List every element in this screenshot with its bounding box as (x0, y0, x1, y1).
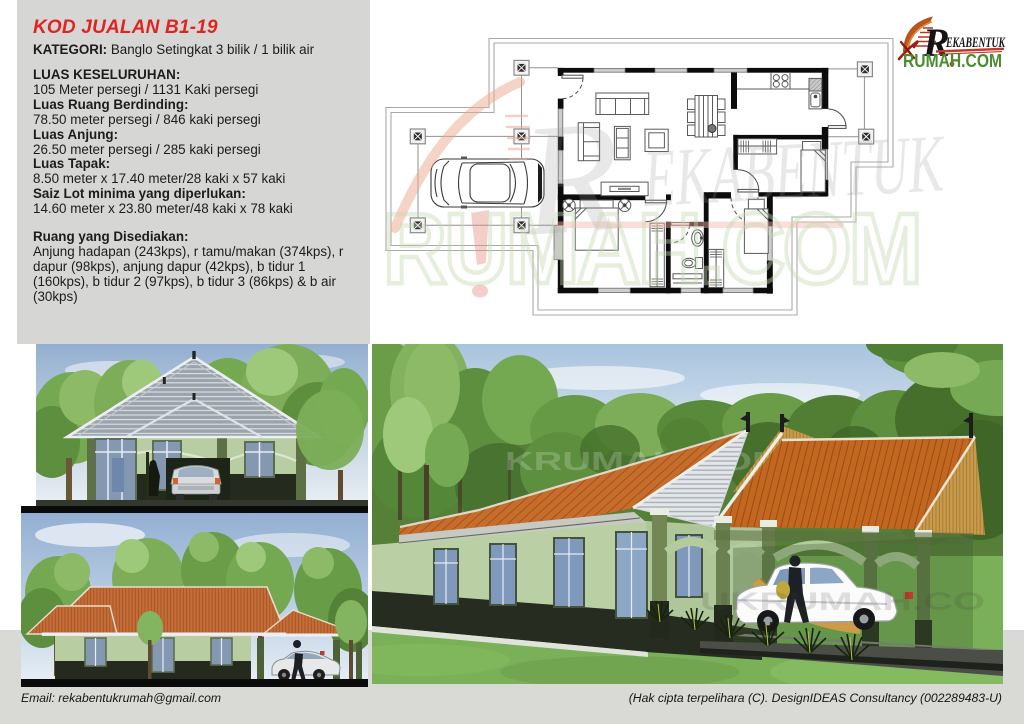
svg-text:RUMAH.COM: RUMAH.COM (383, 193, 920, 305)
svg-text:RUMAH.COM: RUMAH.COM (903, 50, 1002, 71)
svg-text:UKRUMAH.CO: UKRUMAH.CO (700, 588, 985, 616)
